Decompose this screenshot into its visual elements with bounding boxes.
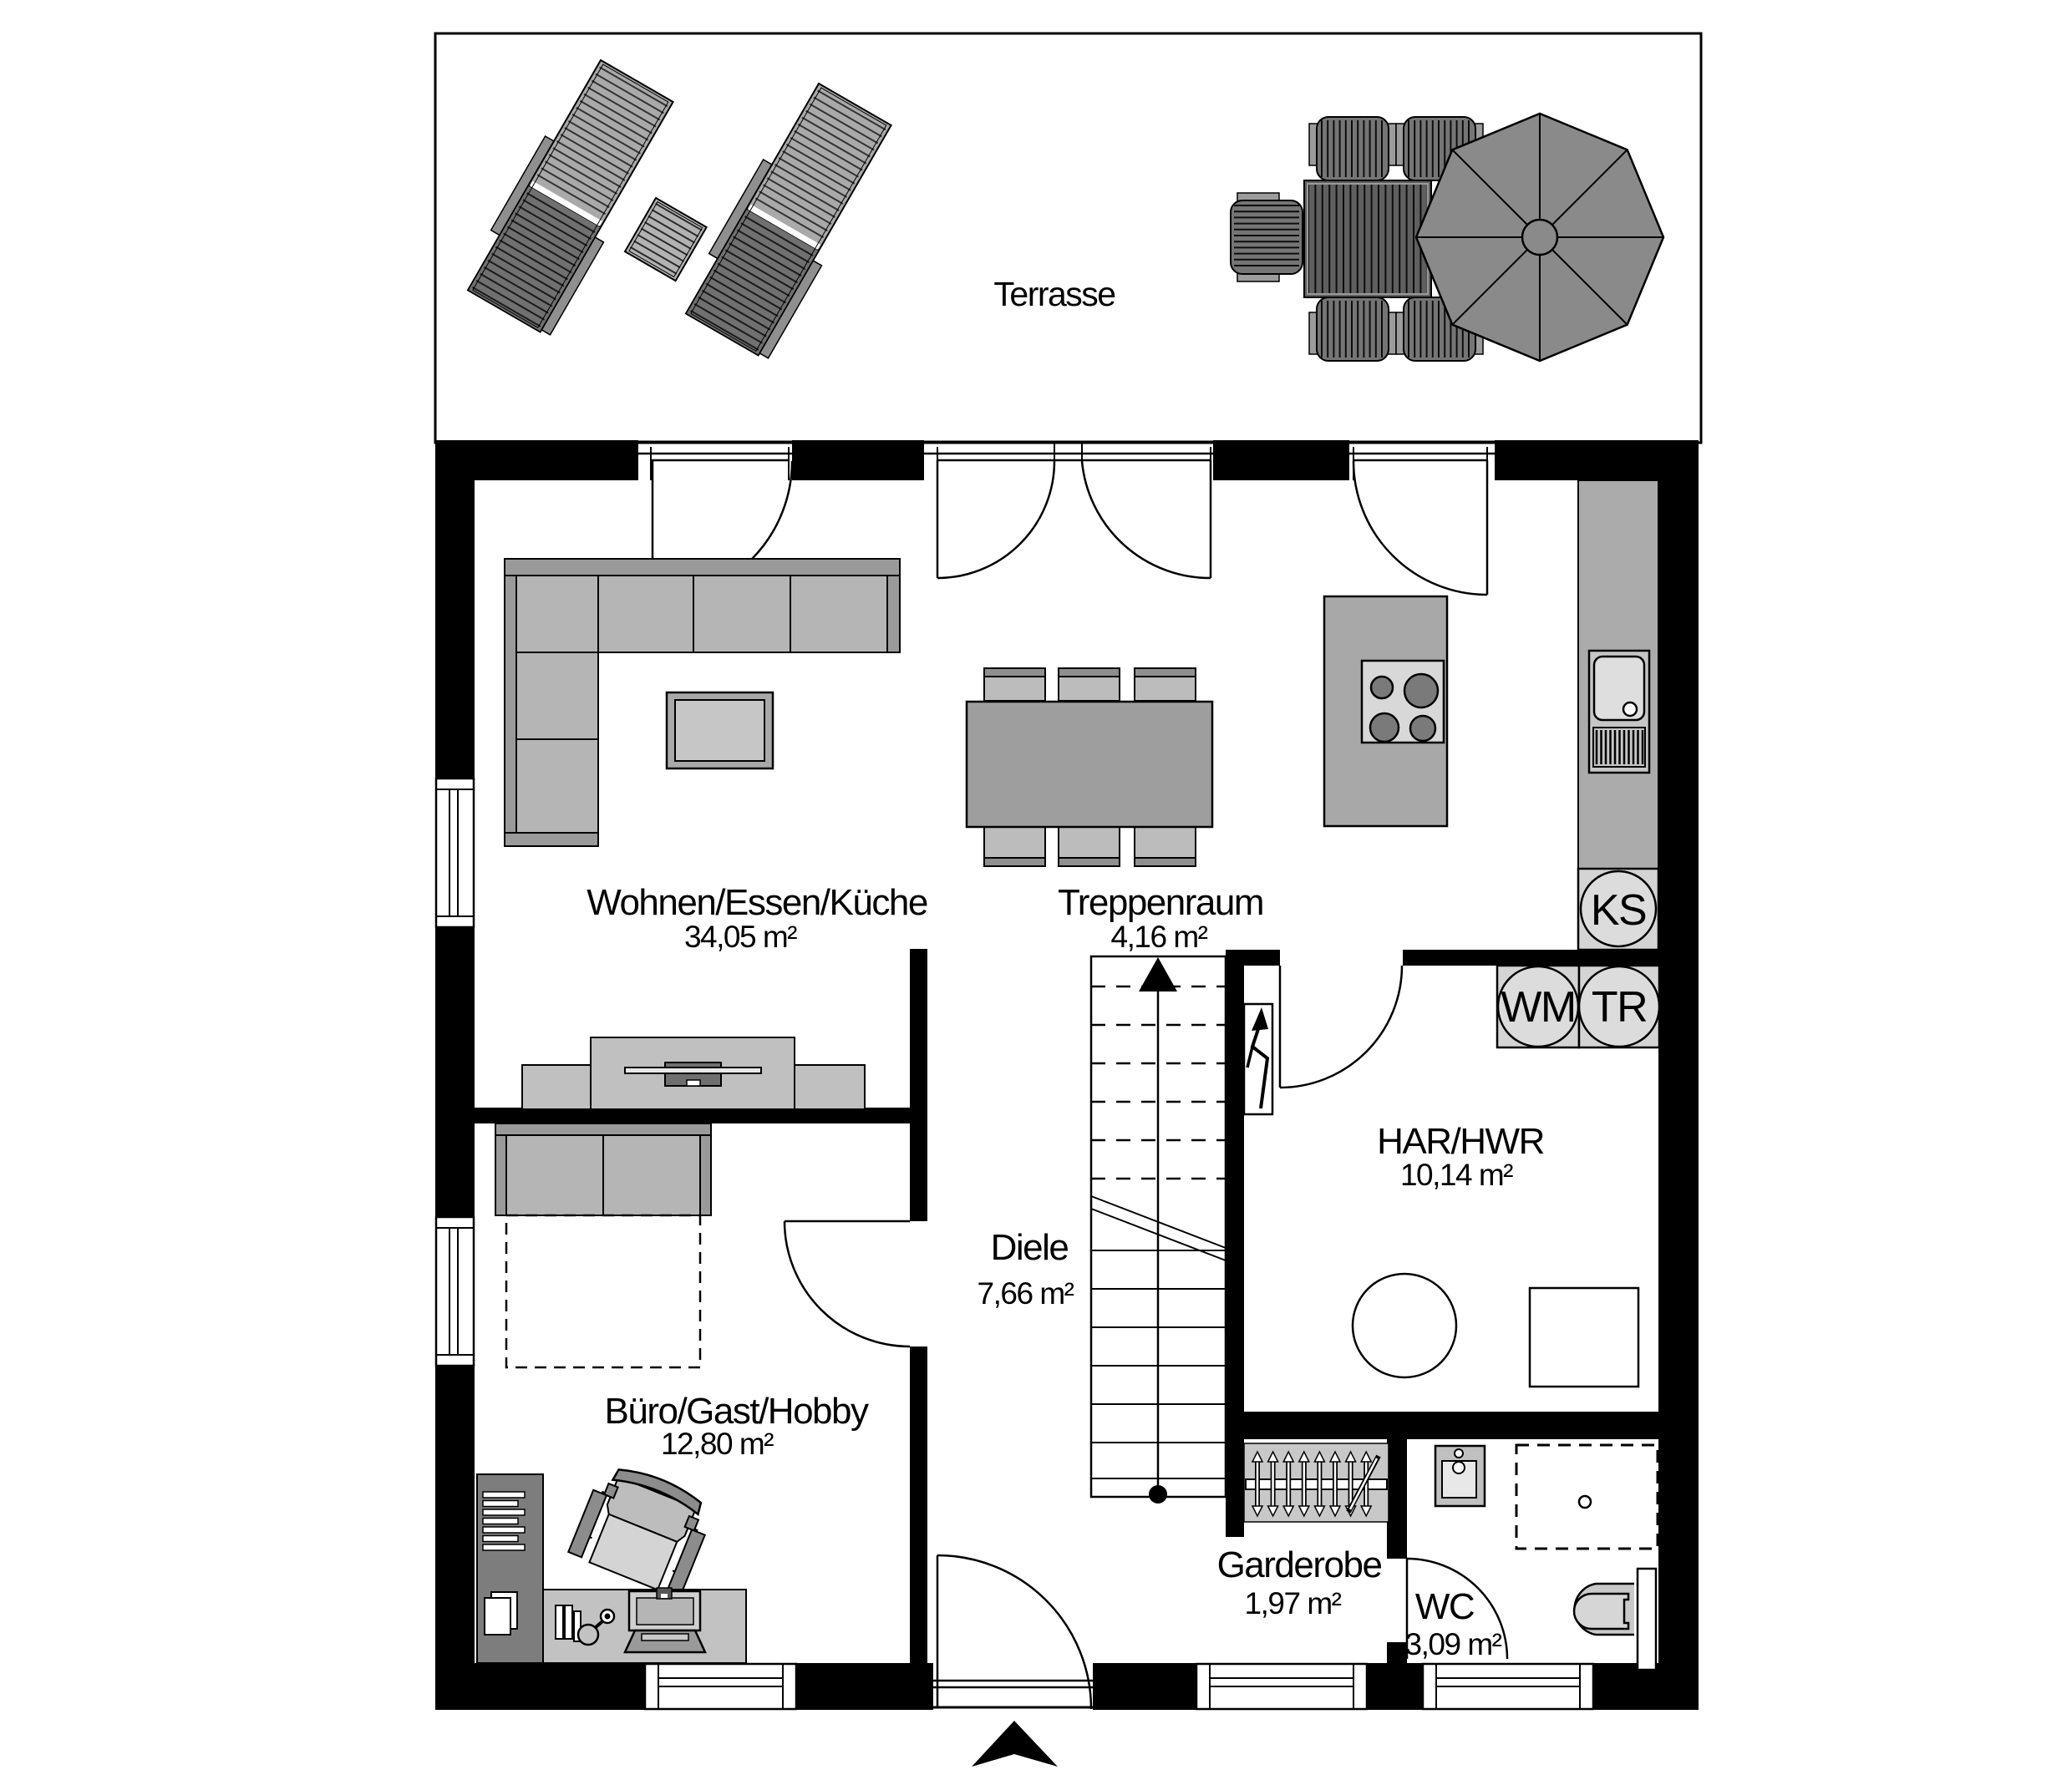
svg-text:WM: WM bbox=[1501, 983, 1575, 1032]
svg-text:7,66 m²: 7,66 m² bbox=[978, 1276, 1074, 1311]
svg-text:34,05 m²: 34,05 m² bbox=[684, 920, 797, 954]
svg-text:WC: WC bbox=[1415, 1586, 1475, 1627]
svg-text:TR: TR bbox=[1592, 983, 1647, 1032]
svg-text:Garderobe: Garderobe bbox=[1217, 1544, 1382, 1585]
svg-text:HAR/HWR: HAR/HWR bbox=[1377, 1121, 1544, 1162]
svg-text:10,14 m²: 10,14 m² bbox=[1400, 1158, 1513, 1192]
svg-text:Terrasse: Terrasse bbox=[993, 275, 1115, 313]
svg-text:Wohnen/Essen/Küche: Wohnen/Essen/Küche bbox=[587, 882, 927, 923]
svg-text:12,80 m²: 12,80 m² bbox=[661, 1427, 774, 1461]
svg-text:3,09 m²: 3,09 m² bbox=[1405, 1627, 1502, 1661]
svg-text:Büro/Gast/Hobby: Büro/Gast/Hobby bbox=[605, 1391, 869, 1432]
svg-text:Diele: Diele bbox=[991, 1227, 1069, 1268]
svg-text:Treppenraum: Treppenraum bbox=[1058, 882, 1263, 923]
svg-text:1,97 m²: 1,97 m² bbox=[1245, 1586, 1342, 1620]
svg-text:KS: KS bbox=[1591, 886, 1646, 935]
svg-text:4,16 m²: 4,16 m² bbox=[1111, 920, 1208, 954]
